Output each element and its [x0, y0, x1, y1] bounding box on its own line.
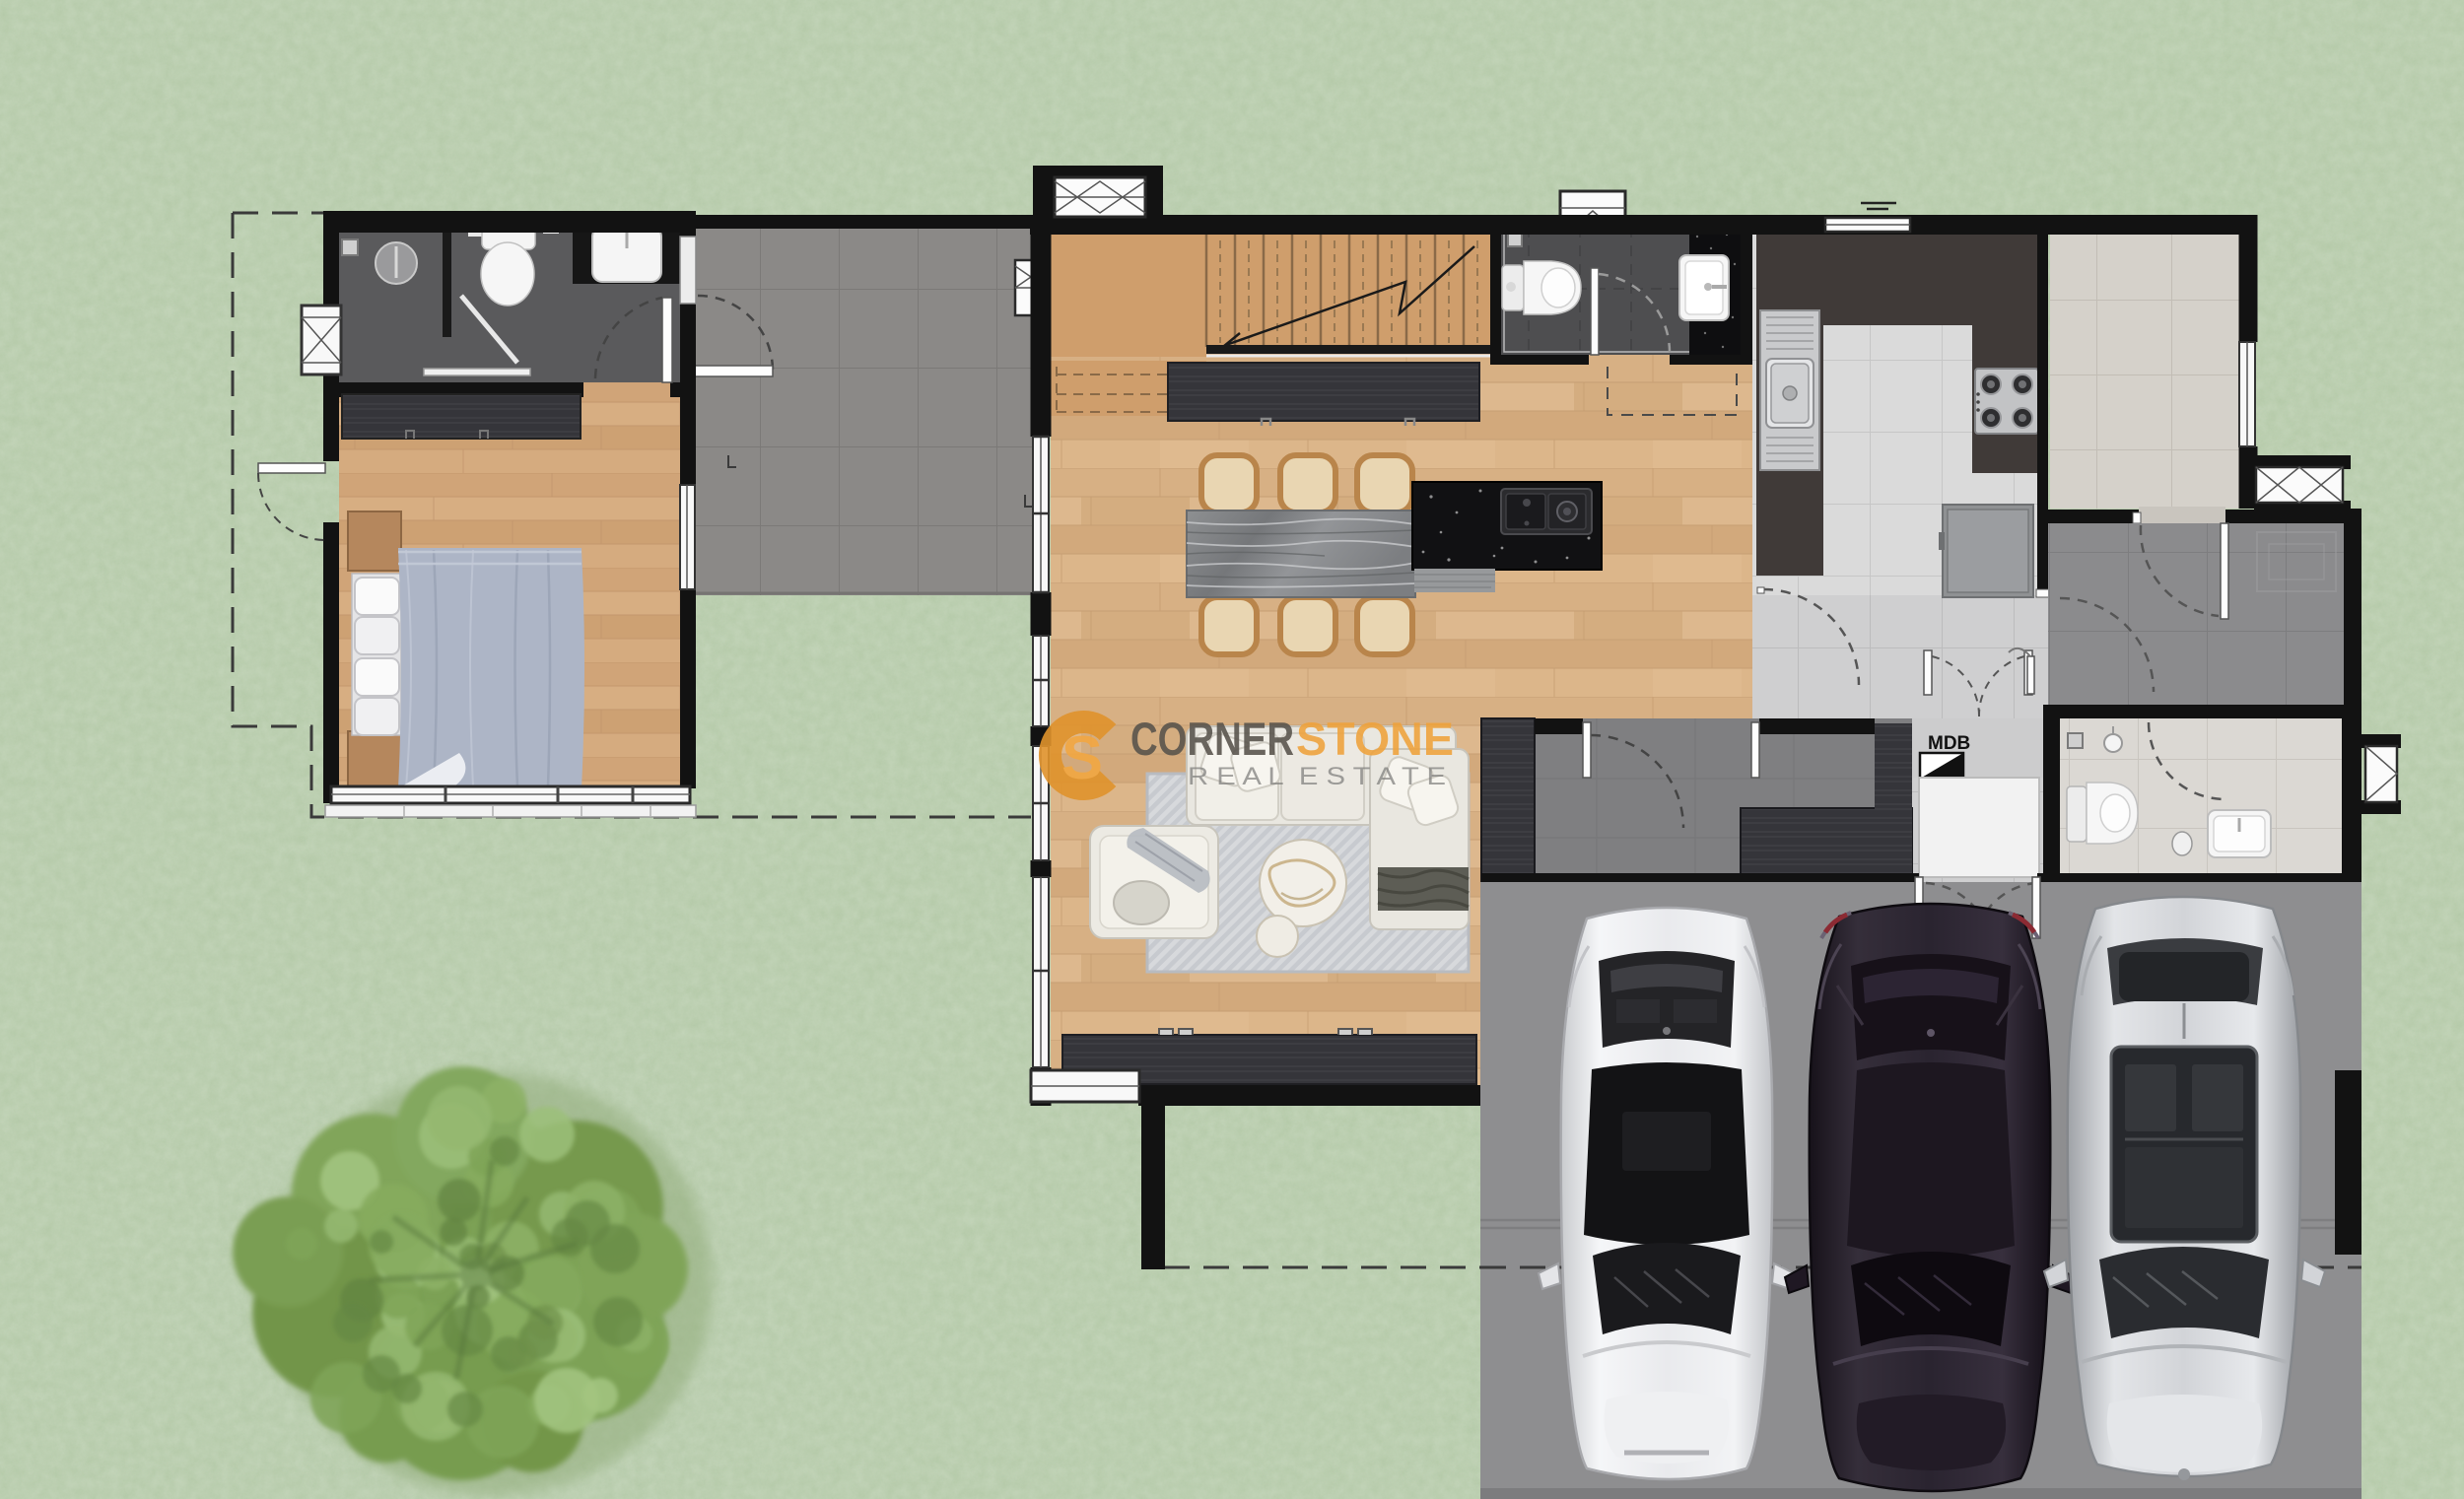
svg-text:CORNER: CORNER: [1130, 713, 1294, 765]
svg-text:S: S: [1061, 724, 1103, 792]
svg-text:STONE: STONE: [1296, 713, 1454, 765]
svg-text:R E A L E S T A T E: R E A L E S T A T E: [1188, 763, 1446, 790]
svg-text:MDB: MDB: [1928, 733, 1970, 754]
